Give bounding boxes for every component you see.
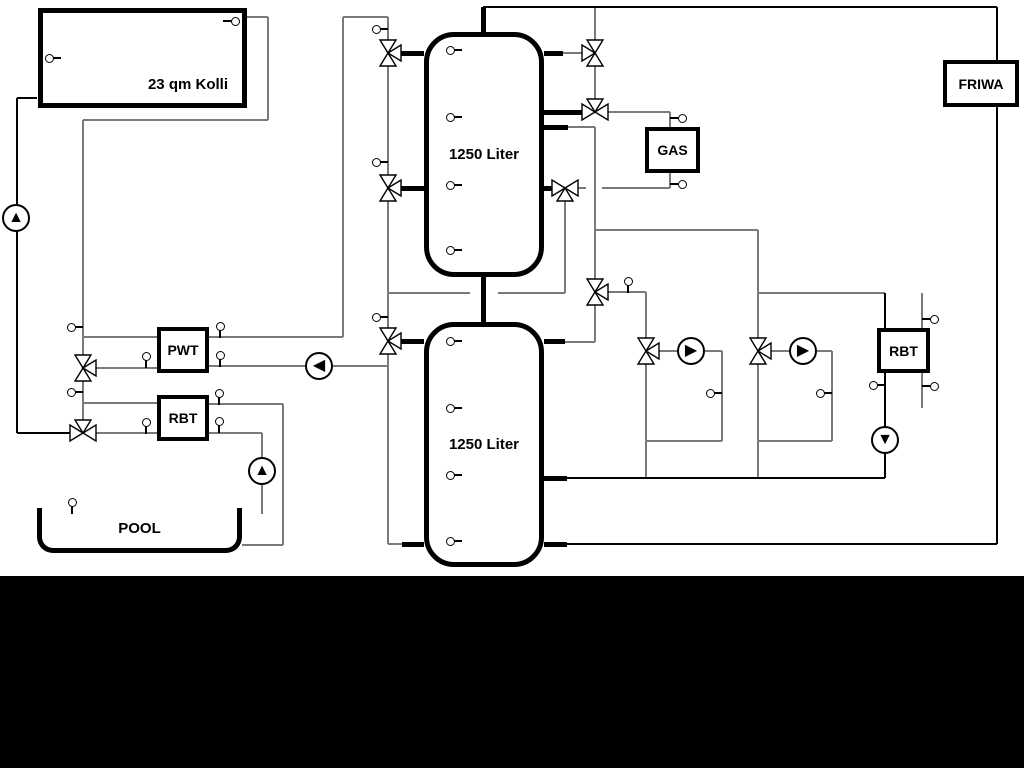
pipe-line xyxy=(595,229,758,231)
valve-gas-return-3way-valve-icon xyxy=(550,173,580,203)
pump-pool: ▲ xyxy=(248,457,276,485)
pipe-line xyxy=(83,402,157,404)
pipe-line xyxy=(82,120,84,355)
pipe-line xyxy=(267,17,269,120)
pipe-line xyxy=(757,230,759,338)
temperature-sensor-icon xyxy=(930,382,939,391)
pipe-line xyxy=(483,6,997,8)
temperature-sensor-icon xyxy=(678,180,687,189)
sensor-stem xyxy=(670,183,678,185)
pipe-line xyxy=(387,66,389,175)
pump-pwt-charge: ◀ xyxy=(305,352,333,380)
rbt-heat-exchanger-right-box-label: RBT xyxy=(889,343,918,359)
pipe-stub xyxy=(544,110,582,115)
pump-heating-circuit-1: ▶ xyxy=(677,337,705,365)
temperature-sensor-icon xyxy=(231,17,240,26)
valve-gas-supply-3way-valve-icon xyxy=(580,97,610,127)
temperature-sensor-icon xyxy=(678,114,687,123)
pipe-line xyxy=(758,440,832,442)
sensor-stem xyxy=(75,326,83,328)
pipe-line xyxy=(567,543,997,545)
pipe-stub xyxy=(481,7,486,32)
pipe-line xyxy=(594,66,596,99)
pipe-line xyxy=(669,112,671,127)
valve-tank1-top-left-3way-valve-icon xyxy=(373,38,403,68)
sensor-stem xyxy=(219,330,221,338)
friwa-station-box-label: FRIWA xyxy=(958,76,1003,92)
sensor-stem xyxy=(454,474,462,476)
sensor-stem xyxy=(454,184,462,186)
solar-collector-box-label: 23 qm Kolli xyxy=(148,76,228,93)
sensor-stem xyxy=(454,49,462,51)
pipe-line xyxy=(96,367,157,369)
pipe-line xyxy=(82,381,84,420)
pipe-stub xyxy=(401,339,424,344)
pipe-line xyxy=(96,432,157,434)
pipe-line xyxy=(388,543,402,545)
pipe-stub xyxy=(401,186,424,191)
sensor-stem xyxy=(71,506,73,514)
valve-distribution-3way-valve-icon xyxy=(580,277,610,307)
pipe-line xyxy=(209,365,388,367)
pump-right-triangle-icon: ▶ xyxy=(685,343,697,359)
pump-heating-circuit-2: ▶ xyxy=(789,337,817,365)
rbt-heat-exchanger-left-box-label: RBT xyxy=(169,410,198,426)
sensor-stem xyxy=(824,392,832,394)
rbt-heat-exchanger-left-box: RBT xyxy=(157,395,209,441)
pipe-line xyxy=(83,336,157,338)
pipe-line xyxy=(388,292,470,294)
rbt-heat-exchanger-right-box: RBT xyxy=(877,328,930,373)
pump-right-triangle-icon: ▶ xyxy=(797,343,809,359)
valve-tank1-mid-left-3way-valve-icon xyxy=(373,173,403,203)
buffer-tank-bottom: 1250 Liter xyxy=(424,322,544,567)
pool-basin-label: POOL xyxy=(118,520,161,537)
pipe-line xyxy=(342,17,344,337)
sensor-stem xyxy=(380,316,388,318)
buffer-tank-bottom-label: 1250 Liter xyxy=(449,436,519,453)
valve-tank1-top-right-3way-valve-icon xyxy=(580,38,610,68)
pump-down-triangle-icon: ▼ xyxy=(877,432,893,448)
pipe-line xyxy=(242,544,283,546)
pipe-stub xyxy=(544,542,567,547)
pipe-line xyxy=(17,97,37,99)
pipe-stub xyxy=(481,277,486,322)
pipe-line xyxy=(387,201,389,328)
pump-left-triangle-icon: ◀ xyxy=(313,358,325,374)
valve-heating-circuit-2-3way-valve-icon xyxy=(743,336,773,366)
sensor-stem xyxy=(454,540,462,542)
pipe-stub xyxy=(402,542,424,547)
pipe-line xyxy=(17,432,70,434)
sensor-stem xyxy=(75,391,83,393)
gas-boiler-box-label: GAS xyxy=(657,142,687,158)
pipe-line xyxy=(921,373,923,408)
pump-up-triangle-icon: ▲ xyxy=(8,210,24,226)
pipe-stub xyxy=(401,51,424,56)
pump-rbt-right: ▼ xyxy=(871,426,899,454)
pipe-line xyxy=(758,292,885,294)
pipe-stub xyxy=(544,476,567,481)
sensor-stem xyxy=(454,249,462,251)
pipe-line xyxy=(817,350,832,352)
sensor-stem xyxy=(454,116,462,118)
pump-up-triangle-icon: ▲ xyxy=(254,463,270,479)
pipe-line xyxy=(602,187,670,189)
valve-solar-rbt-3way-valve-icon xyxy=(68,418,98,448)
sensor-stem xyxy=(380,28,388,30)
pipe-line xyxy=(564,201,566,293)
valve-heating-circuit-1-3way-valve-icon xyxy=(631,336,661,366)
pipe-line xyxy=(282,404,284,545)
sensor-stem xyxy=(454,340,462,342)
pipe-line xyxy=(209,403,283,405)
sensor-stem xyxy=(145,360,147,368)
hydraulic-schematic: 23 qm KolliGASFRIWAPWTRBTRBT1250 Liter12… xyxy=(0,0,1024,768)
pipe-line xyxy=(343,16,388,18)
pipe-line xyxy=(594,305,596,342)
friwa-station-box: FRIWA xyxy=(943,60,1019,107)
pipe-line xyxy=(498,292,565,294)
pipe-line xyxy=(567,477,885,479)
pwt-heat-exchanger-box: PWT xyxy=(157,327,209,373)
pipe-line xyxy=(209,336,343,338)
pipe-line xyxy=(831,351,833,441)
sensor-stem xyxy=(627,285,629,293)
pipe-line xyxy=(387,354,389,544)
sensor-stem xyxy=(922,318,930,320)
sensor-stem xyxy=(670,117,678,119)
sensor-stem xyxy=(454,407,462,409)
sensor-stem xyxy=(877,384,885,386)
sensor-stem xyxy=(219,359,221,367)
pwt-heat-exchanger-box-label: PWT xyxy=(167,342,198,358)
sensor-stem xyxy=(714,392,722,394)
sensor-stem xyxy=(53,57,61,59)
pipe-stub xyxy=(544,339,565,344)
sensor-stem xyxy=(218,397,220,405)
sensor-stem xyxy=(380,161,388,163)
pipe-line xyxy=(659,350,677,352)
gas-boiler-box: GAS xyxy=(645,127,700,173)
pipe-line xyxy=(594,7,596,40)
pipe-line xyxy=(884,454,886,478)
pipe-line xyxy=(16,98,18,433)
sensor-stem xyxy=(218,425,220,433)
pipe-line xyxy=(83,119,268,121)
valve-solar-pwt-3way-valve-icon xyxy=(68,353,98,383)
pump-solar: ▲ xyxy=(2,204,30,232)
pipe-line xyxy=(645,364,647,478)
buffer-tank-top-label: 1250 Liter xyxy=(449,146,519,163)
pipe-line xyxy=(646,440,722,442)
pipe-line xyxy=(921,293,923,328)
pipe-line xyxy=(608,111,670,113)
pipe-line xyxy=(705,350,722,352)
pipe-line xyxy=(645,292,647,338)
sensor-stem xyxy=(922,385,930,387)
temperature-sensor-icon xyxy=(930,315,939,324)
buffer-tank-top: 1250 Liter xyxy=(424,32,544,277)
pipe-line xyxy=(884,293,886,328)
solar-collector-box: 23 qm Kolli xyxy=(38,8,247,108)
valve-tank2-top-left-3way-valve-icon xyxy=(373,326,403,356)
pipe-stub xyxy=(544,125,568,130)
pool-basin: POOL xyxy=(37,508,242,553)
sensor-stem xyxy=(145,426,147,434)
pipe-line xyxy=(209,432,262,434)
pipe-line xyxy=(771,350,789,352)
sensor-stem xyxy=(223,20,231,22)
pipe-line xyxy=(565,341,595,343)
pipe-line xyxy=(247,16,268,18)
pipe-line xyxy=(721,351,723,441)
pipe-line xyxy=(757,364,759,478)
pipe-line xyxy=(884,373,886,426)
pipe-stub xyxy=(544,51,563,56)
pipe-line xyxy=(669,173,671,188)
bottom-black-bar xyxy=(0,576,1024,768)
pipe-line xyxy=(594,127,596,279)
